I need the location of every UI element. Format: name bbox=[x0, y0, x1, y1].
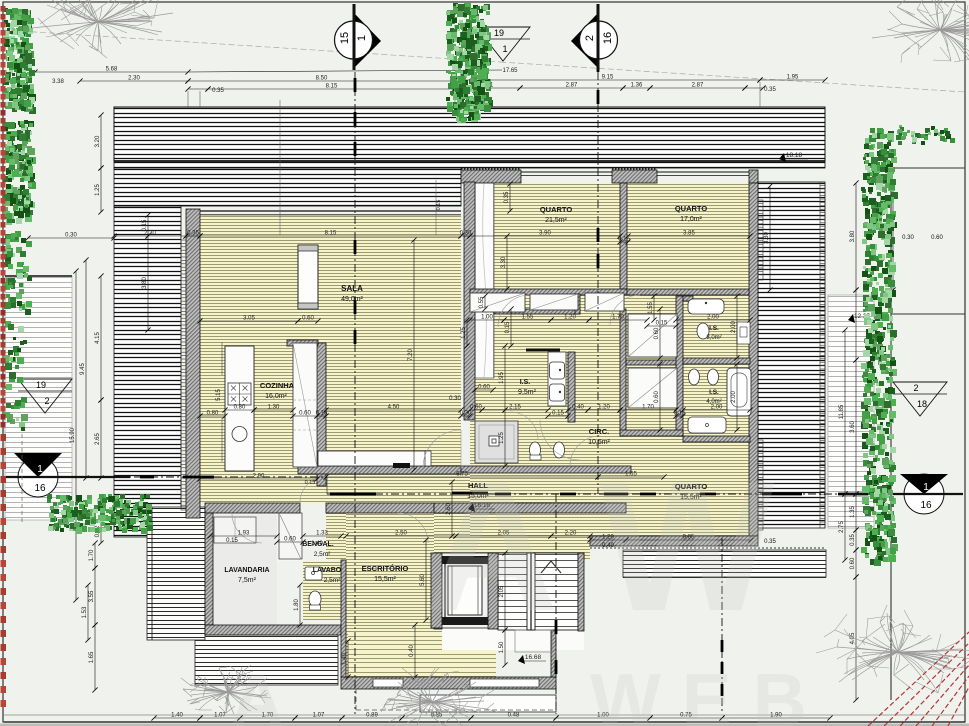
svg-text:2.65: 2.65 bbox=[95, 433, 101, 445]
svg-text:0.60: 0.60 bbox=[302, 316, 314, 322]
svg-text:3.30: 3.30 bbox=[764, 232, 770, 244]
svg-text:CIRC.: CIRC. bbox=[589, 427, 609, 436]
svg-text:1.25: 1.25 bbox=[95, 184, 101, 196]
svg-text:49,0m²: 49,0m² bbox=[341, 296, 363, 303]
svg-text:2: 2 bbox=[584, 35, 596, 41]
svg-text:11.85: 11.85 bbox=[839, 404, 845, 419]
svg-text:1.70: 1.70 bbox=[642, 405, 654, 411]
svg-text:0.60: 0.60 bbox=[654, 327, 660, 339]
svg-text:0.35: 0.35 bbox=[850, 534, 856, 546]
svg-text:0.30: 0.30 bbox=[65, 233, 77, 239]
svg-text:1: 1 bbox=[37, 464, 43, 475]
svg-text:2,5m²: 2,5m² bbox=[314, 551, 331, 558]
svg-text:5.15: 5.15 bbox=[216, 389, 222, 401]
svg-text:0.60: 0.60 bbox=[284, 537, 296, 543]
svg-text:1.95: 1.95 bbox=[499, 372, 505, 384]
svg-text:0.60: 0.60 bbox=[931, 235, 943, 241]
svg-text:3.38: 3.38 bbox=[52, 79, 64, 85]
svg-text:0.60: 0.60 bbox=[299, 411, 311, 417]
svg-text:0.15: 0.15 bbox=[552, 411, 564, 417]
svg-text:3.20: 3.20 bbox=[95, 135, 101, 147]
svg-text:1.70: 1.70 bbox=[612, 315, 624, 321]
svg-text:1.33: 1.33 bbox=[316, 531, 328, 537]
svg-text:21,5m²: 21,5m² bbox=[545, 217, 567, 224]
svg-text:COZINHA: COZINHA bbox=[260, 381, 295, 390]
svg-text:2.50: 2.50 bbox=[395, 531, 407, 537]
svg-text:0.35: 0.35 bbox=[504, 191, 510, 203]
svg-text:0.30: 0.30 bbox=[460, 411, 472, 417]
svg-text:0.40: 0.40 bbox=[409, 645, 415, 657]
svg-text:ESCRITÓRIO: ESCRITÓRIO bbox=[362, 564, 409, 573]
svg-text:1.53: 1.53 bbox=[82, 606, 88, 618]
svg-text:9.45: 9.45 bbox=[80, 363, 86, 375]
svg-text:5.68: 5.68 bbox=[106, 67, 118, 73]
svg-text:3.55: 3.55 bbox=[89, 590, 95, 602]
svg-text:I.S.: I.S. bbox=[520, 379, 531, 386]
svg-text:1.95: 1.95 bbox=[787, 75, 799, 81]
svg-text:3.90: 3.90 bbox=[539, 231, 551, 237]
svg-text:0.40: 0.40 bbox=[572, 405, 584, 411]
svg-text:2.00: 2.00 bbox=[711, 405, 723, 411]
svg-text:0.15: 0.15 bbox=[656, 321, 668, 327]
svg-text:9.15: 9.15 bbox=[602, 75, 614, 81]
svg-text:0.80: 0.80 bbox=[234, 405, 246, 411]
svg-text:2.00: 2.00 bbox=[707, 315, 719, 321]
svg-text:1.07: 1.07 bbox=[313, 713, 325, 719]
svg-text:19: 19 bbox=[494, 28, 504, 38]
svg-text:0.89: 0.89 bbox=[366, 713, 378, 719]
svg-text:0.15: 0.15 bbox=[505, 321, 511, 333]
svg-text:17.65: 17.65 bbox=[502, 68, 518, 74]
svg-text:LAVANDARIA: LAVANDARIA bbox=[224, 567, 269, 574]
svg-text:0.35: 0.35 bbox=[187, 231, 199, 237]
svg-text:2: 2 bbox=[44, 396, 49, 406]
svg-text:2.00: 2.00 bbox=[731, 391, 737, 403]
svg-text:15.90: 15.90 bbox=[70, 427, 76, 443]
svg-text:A: A bbox=[425, 444, 559, 650]
svg-text:16.68: 16.68 bbox=[525, 654, 542, 661]
svg-text:1.20: 1.20 bbox=[564, 315, 576, 321]
svg-text:15,5m²: 15,5m² bbox=[374, 576, 396, 583]
svg-text:7.20: 7.20 bbox=[408, 349, 414, 361]
svg-text:2.87: 2.87 bbox=[692, 83, 704, 89]
svg-text:3,0m²: 3,0m² bbox=[706, 335, 721, 341]
svg-text:15: 15 bbox=[339, 32, 351, 44]
svg-text:0.80: 0.80 bbox=[207, 411, 219, 417]
svg-text:0.30: 0.30 bbox=[902, 235, 914, 241]
svg-text:8.50: 8.50 bbox=[316, 76, 328, 82]
svg-text:2.30: 2.30 bbox=[128, 76, 140, 82]
svg-text:4.15: 4.15 bbox=[95, 332, 101, 344]
svg-text:0.30: 0.30 bbox=[449, 396, 461, 402]
svg-text:1.55: 1.55 bbox=[522, 315, 534, 321]
svg-text:I.S.: I.S. bbox=[709, 389, 719, 396]
svg-text:QUARTO: QUARTO bbox=[540, 205, 573, 214]
svg-text:3.80: 3.80 bbox=[850, 230, 856, 242]
svg-text:2: 2 bbox=[913, 383, 918, 393]
svg-text:1.35: 1.35 bbox=[850, 506, 856, 518]
svg-text:3.05: 3.05 bbox=[243, 316, 255, 322]
svg-text:3.60: 3.60 bbox=[850, 421, 856, 433]
svg-text:1.55: 1.55 bbox=[648, 302, 654, 314]
svg-text:2.00: 2.00 bbox=[731, 321, 737, 333]
svg-text:0.55: 0.55 bbox=[479, 296, 485, 308]
svg-text:16: 16 bbox=[602, 32, 614, 44]
svg-text:0.15: 0.15 bbox=[436, 200, 442, 211]
svg-text:17,0m²: 17,0m² bbox=[680, 216, 702, 223]
svg-text:0.60: 0.60 bbox=[850, 557, 856, 569]
svg-text:LAVABO: LAVABO bbox=[313, 567, 342, 574]
svg-text:1: 1 bbox=[923, 482, 929, 493]
svg-text:16: 16 bbox=[34, 483, 46, 494]
svg-text:2.75: 2.75 bbox=[839, 521, 845, 533]
svg-text:1.36: 1.36 bbox=[631, 83, 643, 89]
svg-text:1.25: 1.25 bbox=[461, 327, 467, 339]
svg-text:7,5m²: 7,5m² bbox=[238, 577, 257, 584]
svg-text:SALA: SALA bbox=[341, 284, 363, 293]
svg-text:W: W bbox=[600, 444, 775, 650]
svg-text:W E B: W E B bbox=[590, 658, 807, 726]
svg-text:2.15: 2.15 bbox=[509, 405, 521, 411]
svg-text:8.15: 8.15 bbox=[326, 84, 338, 90]
svg-text:18.18: 18.18 bbox=[786, 152, 803, 159]
svg-text:0.35: 0.35 bbox=[764, 87, 776, 93]
svg-text:1.80: 1.80 bbox=[294, 599, 300, 611]
svg-text:3.80: 3.80 bbox=[142, 277, 148, 289]
svg-text:I.S.: I.S. bbox=[709, 325, 719, 332]
svg-text:A: A bbox=[230, 658, 284, 726]
svg-text:8.15: 8.15 bbox=[325, 231, 337, 237]
svg-text:1.20: 1.20 bbox=[598, 405, 610, 411]
svg-text:16: 16 bbox=[920, 500, 932, 511]
svg-text:1: 1 bbox=[502, 44, 507, 54]
svg-text:2.20: 2.20 bbox=[565, 531, 577, 537]
svg-text:9,5m²: 9,5m² bbox=[518, 389, 537, 396]
svg-text:1.40: 1.40 bbox=[342, 653, 348, 665]
svg-text:1.40: 1.40 bbox=[171, 713, 183, 719]
svg-text:3.85: 3.85 bbox=[683, 231, 695, 237]
svg-text:QUARTO: QUARTO bbox=[675, 204, 708, 213]
svg-text:0.60: 0.60 bbox=[478, 385, 490, 391]
svg-text:1.65: 1.65 bbox=[89, 651, 95, 663]
svg-text:2.90: 2.90 bbox=[253, 474, 265, 480]
svg-text:1.30: 1.30 bbox=[268, 405, 280, 411]
svg-text:4.50: 4.50 bbox=[388, 405, 400, 411]
svg-text:1: 1 bbox=[356, 35, 368, 41]
svg-text:0.15: 0.15 bbox=[618, 237, 630, 243]
svg-text:0.15: 0.15 bbox=[226, 538, 238, 544]
svg-text:1.40: 1.40 bbox=[311, 541, 323, 547]
svg-text:1.00: 1.00 bbox=[481, 315, 493, 321]
svg-text:1.70: 1.70 bbox=[89, 549, 95, 561]
svg-text:1.07: 1.07 bbox=[214, 713, 226, 719]
svg-text:2.87: 2.87 bbox=[566, 83, 578, 89]
svg-text:19: 19 bbox=[36, 380, 46, 390]
svg-text:0.15: 0.15 bbox=[142, 219, 148, 231]
svg-text:2,5m²: 2,5m² bbox=[324, 577, 341, 584]
svg-text:0.60: 0.60 bbox=[470, 405, 482, 411]
svg-text:0.15: 0.15 bbox=[674, 411, 686, 417]
svg-text:0.60: 0.60 bbox=[654, 391, 660, 403]
svg-text:1.25: 1.25 bbox=[499, 432, 505, 444]
svg-text:18: 18 bbox=[917, 399, 927, 409]
svg-text:0.15: 0.15 bbox=[305, 480, 316, 486]
svg-text:3.30: 3.30 bbox=[501, 256, 507, 268]
svg-text:1.93: 1.93 bbox=[238, 531, 250, 537]
svg-text:16,0m²: 16,0m² bbox=[265, 393, 287, 400]
svg-text:0.15: 0.15 bbox=[316, 411, 328, 417]
svg-text:0.48: 0.48 bbox=[508, 713, 520, 719]
